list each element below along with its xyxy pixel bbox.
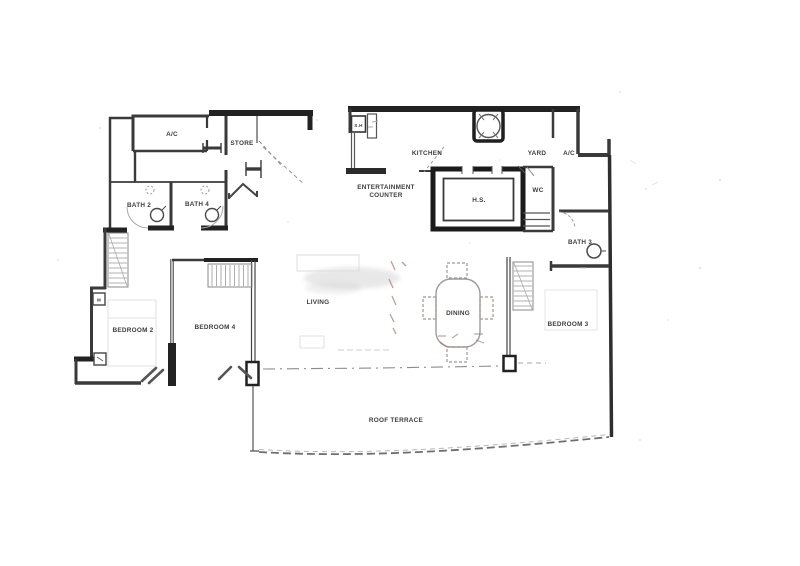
living-terrace-edge (263, 366, 502, 369)
room-label-dining: DINING (446, 310, 470, 317)
room-label-bedroom2: BEDROOM 2 (113, 327, 154, 334)
roof-terrace-boundary (250, 386, 609, 454)
room-label-bath2: BATH 2 (127, 202, 151, 209)
column (504, 356, 516, 371)
room-label-bedroom4: BEDROOM 4 (195, 324, 236, 331)
double-door-swing (229, 184, 257, 199)
label-entertainment-counter-line1: ENTERTAINMENT (357, 184, 414, 191)
floor-plan-canvas: A/C STORE S.H KITCHEN YARD A/C ENTERTAIN… (0, 0, 800, 566)
toilet-icon (206, 209, 219, 222)
bedroom2-wardrobe-hatch (108, 233, 128, 287)
bedroom3-structure (504, 257, 598, 371)
vanity-shelf (523, 213, 550, 226)
door-swing-arc (559, 212, 575, 228)
room-label-bath4: BATH 4 (185, 201, 209, 208)
column (247, 362, 259, 385)
room-label-bath3: BATH 3 (568, 239, 592, 246)
entertainment-counter (346, 168, 386, 174)
room-label-sh: S.H (354, 123, 363, 128)
room-label-yard: YARD (528, 150, 547, 157)
room-label-bedroom3: BEDROOM 3 (548, 321, 589, 328)
scan-noise (57, 91, 721, 441)
walls-kitchen-block (346, 109, 609, 174)
bedroom4-wardrobe-hatch (208, 264, 252, 287)
room-label-hs: H.S. (472, 197, 485, 204)
meter-boxes (93, 293, 106, 365)
shower-head-icon (201, 186, 209, 194)
room-label-living: LIVING (307, 299, 330, 306)
window-mullion (507, 257, 510, 356)
shower-head-icon (146, 186, 154, 194)
room-label-ac-right: A/C (563, 150, 575, 157)
walls-top-left-block (103, 113, 313, 230)
floor-plan-page: A/C STORE S.H KITCHEN YARD A/C ENTERTAIN… (0, 0, 800, 566)
room-label-wc: WC (532, 187, 543, 194)
meter-box-label: M (97, 298, 101, 303)
room-label-roof-terrace: ROOF TERRACE (369, 417, 424, 424)
wardrobe-hatch (513, 262, 533, 310)
exterior-right-wall (610, 155, 612, 437)
room-label-ac-left: A/C (166, 131, 178, 138)
room-label-store: STORE (230, 140, 254, 147)
door-swing-arc (127, 207, 148, 228)
door-jamb (246, 160, 261, 178)
toilet-icon (151, 209, 164, 222)
room-label-kitchen: KITCHEN (412, 150, 442, 157)
kitchen-sink-icon (474, 110, 503, 141)
toilet-icon (587, 244, 601, 258)
door-swing-arc (201, 206, 223, 228)
wc-walls (523, 167, 553, 231)
terrace-door-swings (142, 367, 251, 383)
label-entertainment-counter-line2: COUNTER (369, 192, 402, 199)
red-furniture-dashes (438, 334, 484, 347)
